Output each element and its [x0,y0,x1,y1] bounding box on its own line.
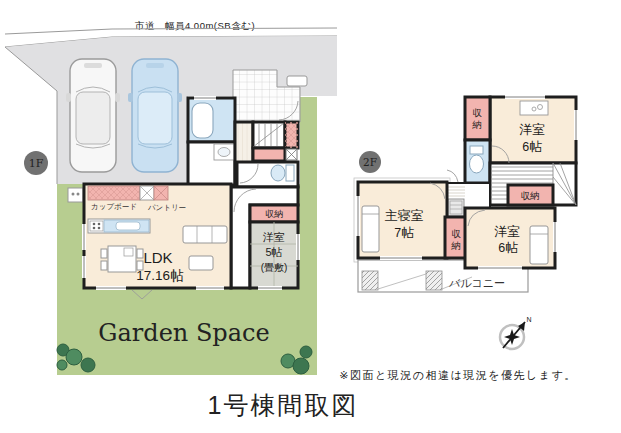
pantry-label: パントリー [147,203,186,212]
storage-under-stair [253,148,285,161]
tatami-name-label: 洋室 [262,231,285,243]
balcony-label: バルコニー [448,277,505,289]
storage-tatami-label: 収納 [265,209,283,219]
floorplan-canvas: 市道 幅員4.00m(SB含む) Ga [0,0,621,433]
balcony-hatch-mid [426,271,442,290]
bed-icon-master [362,206,379,252]
floor2-plan: バルコニー 洋室 6帖 収 納 収納 [354,95,578,292]
storage-stair-side-hatch [285,122,298,148]
desk-icon [520,101,548,115]
car-gray [66,59,120,172]
room-bottom-size: 6帖 [498,241,518,255]
kitchen-sink-icon [104,220,149,232]
floorplan-page: 市道 幅員4.00m(SB含む) Ga [0,0,621,433]
page-title: 1号棟間取図 [208,391,359,419]
road-label: 市道 幅員4.00m(SB含む) [134,20,255,31]
closet-mid-label: 収納 [521,190,540,201]
bathtub-icon [192,103,213,138]
master-bedroom-name: 主寝室 [385,208,424,223]
compass-north-label: N [526,316,531,323]
kitchen-counter [88,219,150,233]
room-top-name: 洋室 [519,122,545,137]
staircase-1f [253,122,285,148]
tatami-note-label: (畳敷) [261,262,288,273]
closet-right-char2: 納 [451,240,461,251]
utility-meter-box [68,188,83,202]
floor2-badge-label: 2F [363,156,377,168]
bed-icon-bottom [530,226,548,264]
meter-dot [72,193,75,196]
room-bottom-name: 洋室 [494,224,520,239]
disclaimer-note: ※図面と現況の相違は現況を優先します。 [339,369,577,381]
pantry-closet [140,186,168,200]
room-top-size: 6帖 [522,140,542,154]
floor1-plan: 市道 幅員4.00m(SB含む) Ga [5,20,337,375]
stove-icon [90,221,103,231]
ldk-label: LDK [143,249,172,266]
car-blue [128,59,182,172]
closet-right-char1: 収 [451,228,461,239]
shoe-box [286,149,297,160]
washbasin-icon [214,144,234,160]
garden-space-label: Garden Space [98,319,269,347]
closet-top-char1: 収 [472,107,482,118]
master-bedroom-size: 7帖 [394,226,414,240]
toilet-icon-2f [470,146,484,173]
floor2-badge: 2F [359,151,381,173]
floor1-badge-label: 1F [29,157,44,170]
floor1-badge: 1F [24,151,48,175]
balcony-hatch-left [362,271,378,290]
cupboard-label: カップボード [91,202,137,211]
cupboard [88,186,140,200]
meter-dot [77,193,80,196]
washer-icon [448,199,464,216]
closet-top-char2: 納 [472,119,482,130]
toilet-icon-1f [271,165,294,181]
porch-step [287,76,307,86]
ldk-size-label: 17.16帖 [136,268,184,283]
tatami-size-label: 5帖 [265,246,282,258]
road-edge-line [5,28,337,34]
compass-icon: N [500,316,532,349]
